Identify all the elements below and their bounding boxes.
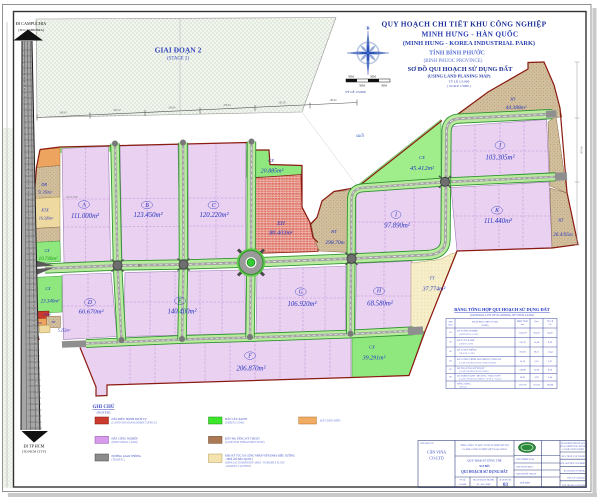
svg-text:(GREEN LAND): (GREEN LAND) xyxy=(225,422,244,425)
svg-text:1.617,87: 1.617,87 xyxy=(518,385,527,387)
svg-text:206.870m²: 206.870m² xyxy=(236,366,266,373)
svg-text:111.440m²: 111.440m² xyxy=(484,218,513,225)
svg-text:ĐI CAMPUCHIA: ĐI CAMPUCHIA xyxy=(16,21,47,26)
svg-text:BẢNG TỔNG HỢP QUI HOẠCH SỬ DỤN: BẢNG TỔNG HỢP QUI HOẠCH SỬ DỤNG ĐẤT xyxy=(454,307,550,312)
svg-text:HT: HT xyxy=(509,97,516,102)
svg-text:138,98: 138,98 xyxy=(519,370,526,372)
svg-text:(NAME): (NAME) xyxy=(482,324,489,327)
svg-text:HT: HT xyxy=(330,229,337,234)
svg-text:F: F xyxy=(247,353,252,359)
svg-text:DB: DB xyxy=(40,182,47,187)
svg-text:(TOTAL): (TOTAL) xyxy=(459,386,467,389)
svg-text:249.95: 249.95 xyxy=(168,107,176,110)
svg-text:111.000m²: 111.000m² xyxy=(71,213,100,220)
svg-text:(ha): (ha) xyxy=(535,320,539,323)
svg-text:(TRAFFIC): (TRAFFIC) xyxy=(112,459,125,462)
svg-text:HT: HT xyxy=(557,218,564,223)
svg-text:400.00: 400.00 xyxy=(580,146,583,154)
svg-text:D: D xyxy=(87,300,93,306)
svg-text:CHỦ TRÌ K.TRÚC: CHỦ TRÌ K.TRÚC xyxy=(516,465,534,468)
svg-text:(INDUSTRIAL LAND): (INDUSTRIAL LAND) xyxy=(112,441,138,444)
svg-text:EH: EH xyxy=(276,221,286,227)
svg-text:80.403m²: 80.403m² xyxy=(269,230,292,237)
svg-text:39.291m²: 39.291m² xyxy=(362,356,386,362)
svg-text:50M: 50M xyxy=(381,84,387,88)
svg-text:SƠ ĐỒ QUI HOẠCH SỬ DỤNG ĐẤT: SƠ ĐỒ QUI HOẠCH SỬ DỤNG ĐẤT xyxy=(408,65,514,73)
svg-text:GIAI ĐOẠN 2: GIAI ĐOẠN 2 xyxy=(155,46,202,55)
svg-text:E: E xyxy=(177,299,182,305)
svg-text:STT: STT xyxy=(448,322,453,324)
svg-text:C: C xyxy=(212,203,216,209)
svg-text:106.920m²: 106.920m² xyxy=(287,301,317,308)
svg-text:68.580m²: 68.580m² xyxy=(367,301,394,308)
svg-text:37.774m²: 37.774m² xyxy=(422,286,446,293)
svg-text:CX: CX xyxy=(369,345,375,350)
svg-text:06.05.2006: 06.05.2006 xyxy=(66,196,78,199)
svg-text:ĐẤT ĐIỀU HÀNH - DỊCH VỤ - NHÀ: ĐẤT ĐIỀU HÀNH - DỊCH VỤ - NHÀ Ở CNV xyxy=(457,375,501,378)
svg-text:KTX: KTX xyxy=(40,208,49,213)
svg-text:QUY HOẠCH CHI TIẾT KHU CÔNG NG: QUY HOẠCH CHI TIẾT KHU CÔNG NGHIỆP xyxy=(382,19,547,29)
svg-text:KTS. HOÀNG VĂN NAM: KTS. HOÀNG VĂN NAM xyxy=(562,484,585,487)
svg-text:189.92: 189.92 xyxy=(329,99,337,102)
svg-text:13,90: 13,90 xyxy=(534,370,540,372)
svg-text:(USING LAND PLANING MAP): (USING LAND PLANING MAP) xyxy=(428,74,491,79)
svg-text:261.95: 261.95 xyxy=(278,102,286,105)
svg-text:103.305m²: 103.305m² xyxy=(485,155,515,162)
svg-text:60.670m²: 60.670m² xyxy=(79,309,105,316)
svg-text:Đ1: Đ1 xyxy=(138,264,142,268)
svg-text:298.70m: 298.70m xyxy=(325,240,344,246)
svg-text:ĐI TP HCM: ĐI TP HCM xyxy=(24,444,45,449)
svg-text:64,39: 64,39 xyxy=(547,333,553,335)
svg-text:HT: HT xyxy=(50,320,55,324)
svg-text:HOẠCH KIẾN TRÚC ĐÔ THỊ: HOẠCH KIẾN TRÚC ĐÔ THỊ xyxy=(560,445,586,448)
svg-text:16.320m²: 16.320m² xyxy=(39,217,54,221)
svg-text:( SCALE 1/5000 ): ( SCALE 1/5000 ) xyxy=(447,84,470,88)
svg-text:J: J xyxy=(499,143,502,149)
svg-text:(MINH HUNG - KOREA INDUSTRIA: (MINH HUNG - KOREA INDUSTRIAL PARK) xyxy=(403,40,535,47)
svg-text:(INDUSTRIAL LAND): (INDUSTRIAL LAND) xyxy=(459,333,479,336)
svg-text:B: B xyxy=(366,26,369,31)
svg-text:50M: 50M xyxy=(359,84,365,88)
svg-text:CX: CX xyxy=(44,248,50,253)
svg-text:(NOTED): (NOTED) xyxy=(97,411,111,415)
svg-text:262.10: 262.10 xyxy=(113,109,121,112)
svg-text:ĐẤT HẠ TẦNG KỸ THUẬT: ĐẤT HẠ TẦNG KỸ THUẬT xyxy=(225,437,260,441)
svg-text:CẤN VINA: CẤN VINA xyxy=(427,450,446,455)
svg-text:ĐẤT CÔNG TRÌNH ĐẦU MỐI HẠ TẦNG: ĐẤT CÔNG TRÌNH ĐẦU MỐI HẠ TẦNG KT xyxy=(457,358,502,361)
svg-text:(GREEN LAND): (GREEN LAND) xyxy=(459,343,473,346)
svg-text:TT: TT xyxy=(429,276,435,281)
svg-text:15,68: 15,68 xyxy=(534,342,540,344)
svg-text:ĐẤT CÂY XANH: ĐẤT CÂY XANH xyxy=(225,417,247,421)
svg-text:THỂ HIỆN: THỂ HIỆN xyxy=(520,482,530,485)
svg-text:DIỆN TÍCH: DIỆN TÍCH xyxy=(517,320,529,323)
svg-text:123.450m²: 123.450m² xyxy=(133,212,163,219)
svg-text:26.4/95m: 26.4/95m xyxy=(553,231,573,238)
svg-text:B: B xyxy=(145,203,149,209)
svg-text:97.890m²: 97.890m² xyxy=(384,223,411,230)
svg-text:TỶ LỆ: TỶ LỆ xyxy=(547,320,554,323)
svg-text:250.04: 250.04 xyxy=(223,104,231,107)
svg-text:CHỦ NHIỆM Đ.ÁN: CHỦ NHIỆM Đ.ÁN xyxy=(516,458,535,461)
svg-text:KTS. LÊ VĂN HOÀ: KTS. LÊ VĂN HOÀ xyxy=(567,477,585,480)
svg-text:PHÂN KHU CHỨC NĂNG: PHÂN KHU CHỨC NĂNG xyxy=(472,321,498,324)
svg-text:SƠ ĐỒ: SƠ ĐỒ xyxy=(479,463,490,468)
svg-text:CHỦ TRÌ KỸ THUẬT: CHỦ TRÌ KỸ THUẬT xyxy=(516,472,537,475)
svg-text:QUI HOẠCH SỬ DỤNG ĐẤT: QUI HOẠCH SỬ DỤNG ĐẤT xyxy=(461,469,509,474)
svg-text:CHỦ ĐẦU TƯ: CHỦ ĐẦU TƯ xyxy=(420,442,434,445)
svg-text:50M: 50M xyxy=(370,75,376,79)
svg-text:11,44: 11,44 xyxy=(547,352,553,354)
svg-text:(TO HCM CITY): (TO HCM CITY) xyxy=(22,450,46,454)
svg-text:104,18: 104,18 xyxy=(533,333,540,335)
svg-text:1.041,79: 1.041,79 xyxy=(518,333,527,335)
svg-text:05 - 04 - 2006: 05 - 04 - 2006 xyxy=(477,483,491,486)
svg-text:(LAND FOR MANAGEMENT - OFFICE: (LAND FOR MANAGEMENT - OFFICE - FLATS) xyxy=(459,378,502,381)
svg-text:ĐẤT CÔNG NGHIỆP: ĐẤT CÔNG NGHIỆP xyxy=(112,437,139,441)
svg-text:5.252m²: 5.252m² xyxy=(58,329,71,333)
svg-text:TỶ LỆ: TỶ LỆ xyxy=(459,479,466,482)
svg-text:- KOREAN CANTEEN): - KOREAN CANTEEN) xyxy=(225,465,251,468)
svg-text:TỶ LỆ 1/5.000: TỶ LỆ 1/5.000 xyxy=(345,89,366,94)
svg-text:ĐẤT CÔNG NGHIỆP: ĐẤT CÔNG NGHIỆP xyxy=(457,330,478,333)
svg-text:185,06: 185,06 xyxy=(519,352,526,354)
svg-text:XÍ NGHIỆP THIẾT KẾ QUY: XÍ NGHIỆP THIẾT KẾ QUY xyxy=(561,442,586,445)
svg-text:ĐẤT ĐỒN ĐIỀN: ĐẤT ĐỒN ĐIỀN xyxy=(320,419,341,423)
svg-text:suối: suối xyxy=(356,134,365,139)
svg-text:(m²): (m²) xyxy=(521,323,525,326)
svg-text:(BINH PHUOC PROVINCE): (BINH PHUOC PROVINCE) xyxy=(424,59,483,64)
svg-text:ĐƯỜNG GIAO THÔNG: ĐƯỜNG GIAO THÔNG xyxy=(112,454,141,458)
svg-text:TỔNG CỘNG: TỔNG CỘNG xyxy=(457,383,471,386)
svg-text:140.400m²: 140.400m² xyxy=(167,309,197,316)
svg-text:QUY HOẠCH TỔNG THỂ: QUY HOẠCH TỔNG THỂ xyxy=(467,458,502,463)
svg-text:VÀ KHU CÔNG NGHIỆP VIỆT NAM -: VÀ KHU CÔNG NGHIỆP VIỆT NAM - IDICO xyxy=(462,448,507,451)
svg-text:KTS. TRẦN VĂN THANH: KTS. TRẦN VĂN THANH xyxy=(562,455,586,458)
svg-text:39,85: 39,85 xyxy=(520,377,526,379)
svg-text:CX: CX xyxy=(419,155,425,160)
svg-text:(STAGE 2): (STAGE 2) xyxy=(167,57,189,62)
svg-text:NGÀY HOÀN THÀNH: NGÀY HOÀN THÀNH xyxy=(473,479,495,482)
svg-text:(LAND FOR MANAGEMENT OFFICE): (LAND FOR MANAGEMENT OFFICE) xyxy=(112,422,157,425)
svg-text:H: H xyxy=(376,289,382,295)
svg-text:161,79: 161,79 xyxy=(533,385,540,387)
svg-text:18,51: 18,51 xyxy=(534,352,540,354)
svg-text:GHI CHÚ: GHI CHÚ xyxy=(92,404,114,410)
svg-text:CX: CX xyxy=(268,158,274,163)
svg-text:A: A xyxy=(81,203,86,209)
svg-text:(TO CAMBODIA): (TO CAMBODIA) xyxy=(18,28,44,32)
svg-text:(LAND FOR INFRASTRUCTURE): (LAND FOR INFRASTRUCTURE) xyxy=(459,370,489,373)
svg-text:(%): (%) xyxy=(549,323,552,326)
svg-text:(LAND FOR INFRASTRUCTURE): (LAND FOR INFRASTRUCTURE) xyxy=(225,441,265,444)
svg-text:56,14: 56,14 xyxy=(520,361,526,363)
svg-text:45.412m²: 45.412m² xyxy=(410,165,434,172)
svg-text:TỈNH BÌNH PHƯỚC: TỈNH BÌNH PHƯỚC xyxy=(429,49,485,57)
svg-text:(No.): (No.) xyxy=(448,324,452,327)
svg-text:120.220m²: 120.220m² xyxy=(199,212,229,219)
svg-text:KS. PHẠM VĂN HÙNG: KS. PHẠM VĂN HÙNG xyxy=(564,469,586,472)
svg-text:1/5.000: 1/5.000 xyxy=(459,483,467,486)
svg-text:20.885m²: 20.885m² xyxy=(261,169,284,175)
svg-text:51.350m²: 51.350m² xyxy=(38,191,53,195)
svg-text:44.388m²: 44.388m² xyxy=(505,105,526,111)
svg-text:459m²: 459m² xyxy=(43,313,51,317)
svg-text:CO-LTD: CO-LTD xyxy=(429,456,443,461)
svg-text:23.340m²: 23.340m² xyxy=(41,299,60,305)
svg-text:156,76: 156,76 xyxy=(519,342,526,344)
svg-text:BẢN VẼ SỐ: BẢN VẼ SỐ xyxy=(500,479,512,482)
svg-text:TỔNG CÔNG TY ĐẦU TƯ PHÁT TRIỂN: TỔNG CÔNG TY ĐẦU TƯ PHÁT TRIỂN ĐÔ THỊ xyxy=(460,444,509,447)
svg-text:(GENERAL LIST OF PLANNING OF U: (GENERAL LIST OF PLANNING OF USED LAND) xyxy=(470,313,533,317)
svg-text:MINH HƯNG - HÀN QUỐC: MINH HƯNG - HÀN QUỐC xyxy=(422,29,519,39)
svg-text:VÀ KHU CÔNG NGHIỆP: VÀ KHU CÔNG NGHIỆP xyxy=(562,448,585,451)
svg-text:100,00: 100,00 xyxy=(547,385,554,387)
svg-text:ĐẤT GIAO THÔNG: ĐẤT GIAO THÔNG xyxy=(457,349,477,352)
svg-text:03: 03 xyxy=(503,483,509,488)
svg-text:KTS. NGUYỄN VĂN MINH: KTS. NGUYỄN VĂN MINH xyxy=(560,462,585,465)
svg-text:ĐẤT HẠ TẦNG KỸ THUẬT: ĐẤT HẠ TẦNG KỸ THUẬT xyxy=(457,367,485,370)
svg-text:50M: 50M xyxy=(348,75,354,79)
svg-text:TỶ LỆ 1/5.000: TỶ LỆ 1/5.000 xyxy=(449,79,470,84)
svg-text:(LAND FOR INFRASTRUCTURE WORKS: (LAND FOR INFRASTRUCTURE WORKS) xyxy=(459,362,496,365)
svg-text:10.740m²: 10.740m² xyxy=(39,256,58,262)
svg-text:CX: CX xyxy=(45,286,51,291)
svg-text:249.93: 249.93 xyxy=(59,112,67,115)
svg-text:(TRAFFIC LAND): (TRAFFIC LAND) xyxy=(459,352,475,355)
svg-text:ĐẤT ĐIỀU HÀNH DỊCH VỤ: ĐẤT ĐIỀU HÀNH DỊCH VỤ xyxy=(112,417,148,421)
svg-text:ĐẤT CÂY XANH: ĐẤT CÂY XANH xyxy=(457,339,475,342)
